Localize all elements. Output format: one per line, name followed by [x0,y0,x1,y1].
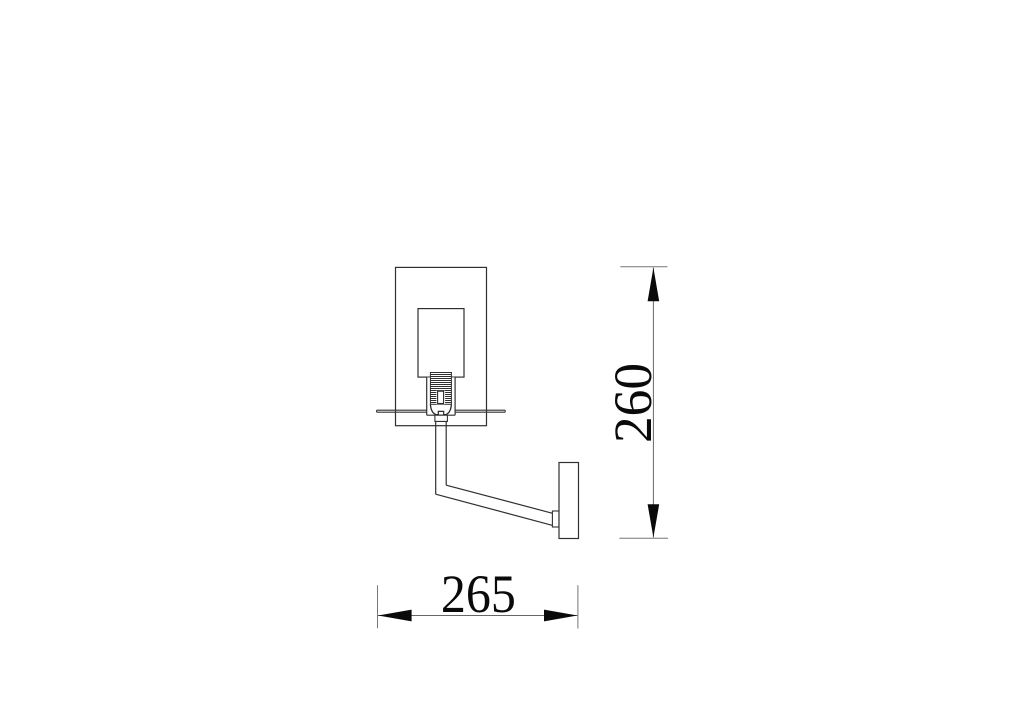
svg-text:265: 265 [441,564,516,624]
svg-text:260: 260 [603,363,663,443]
